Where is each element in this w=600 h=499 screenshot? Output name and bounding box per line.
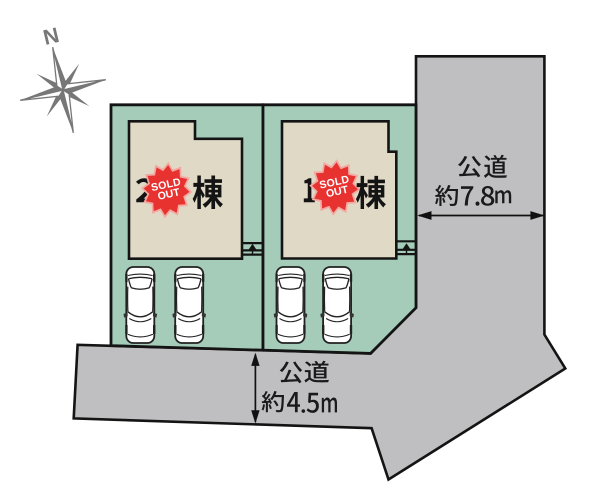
svg-text:N: N — [41, 23, 62, 50]
